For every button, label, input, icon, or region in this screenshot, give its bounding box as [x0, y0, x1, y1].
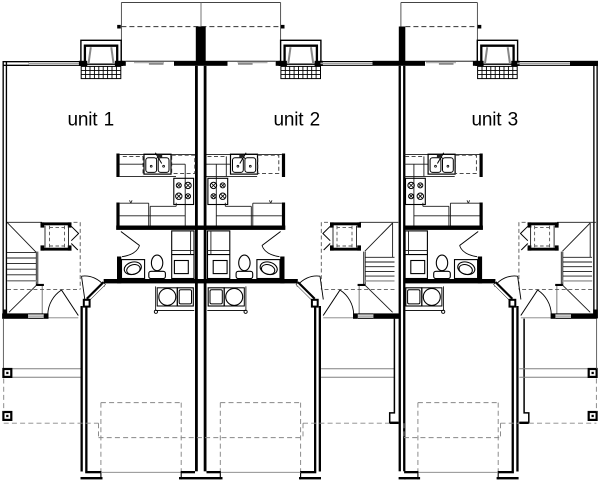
svg-text:unit 1: unit 1	[68, 110, 114, 131]
svg-text:unit 3: unit 3	[472, 110, 518, 131]
svg-text:unit 2: unit 2	[274, 110, 320, 131]
